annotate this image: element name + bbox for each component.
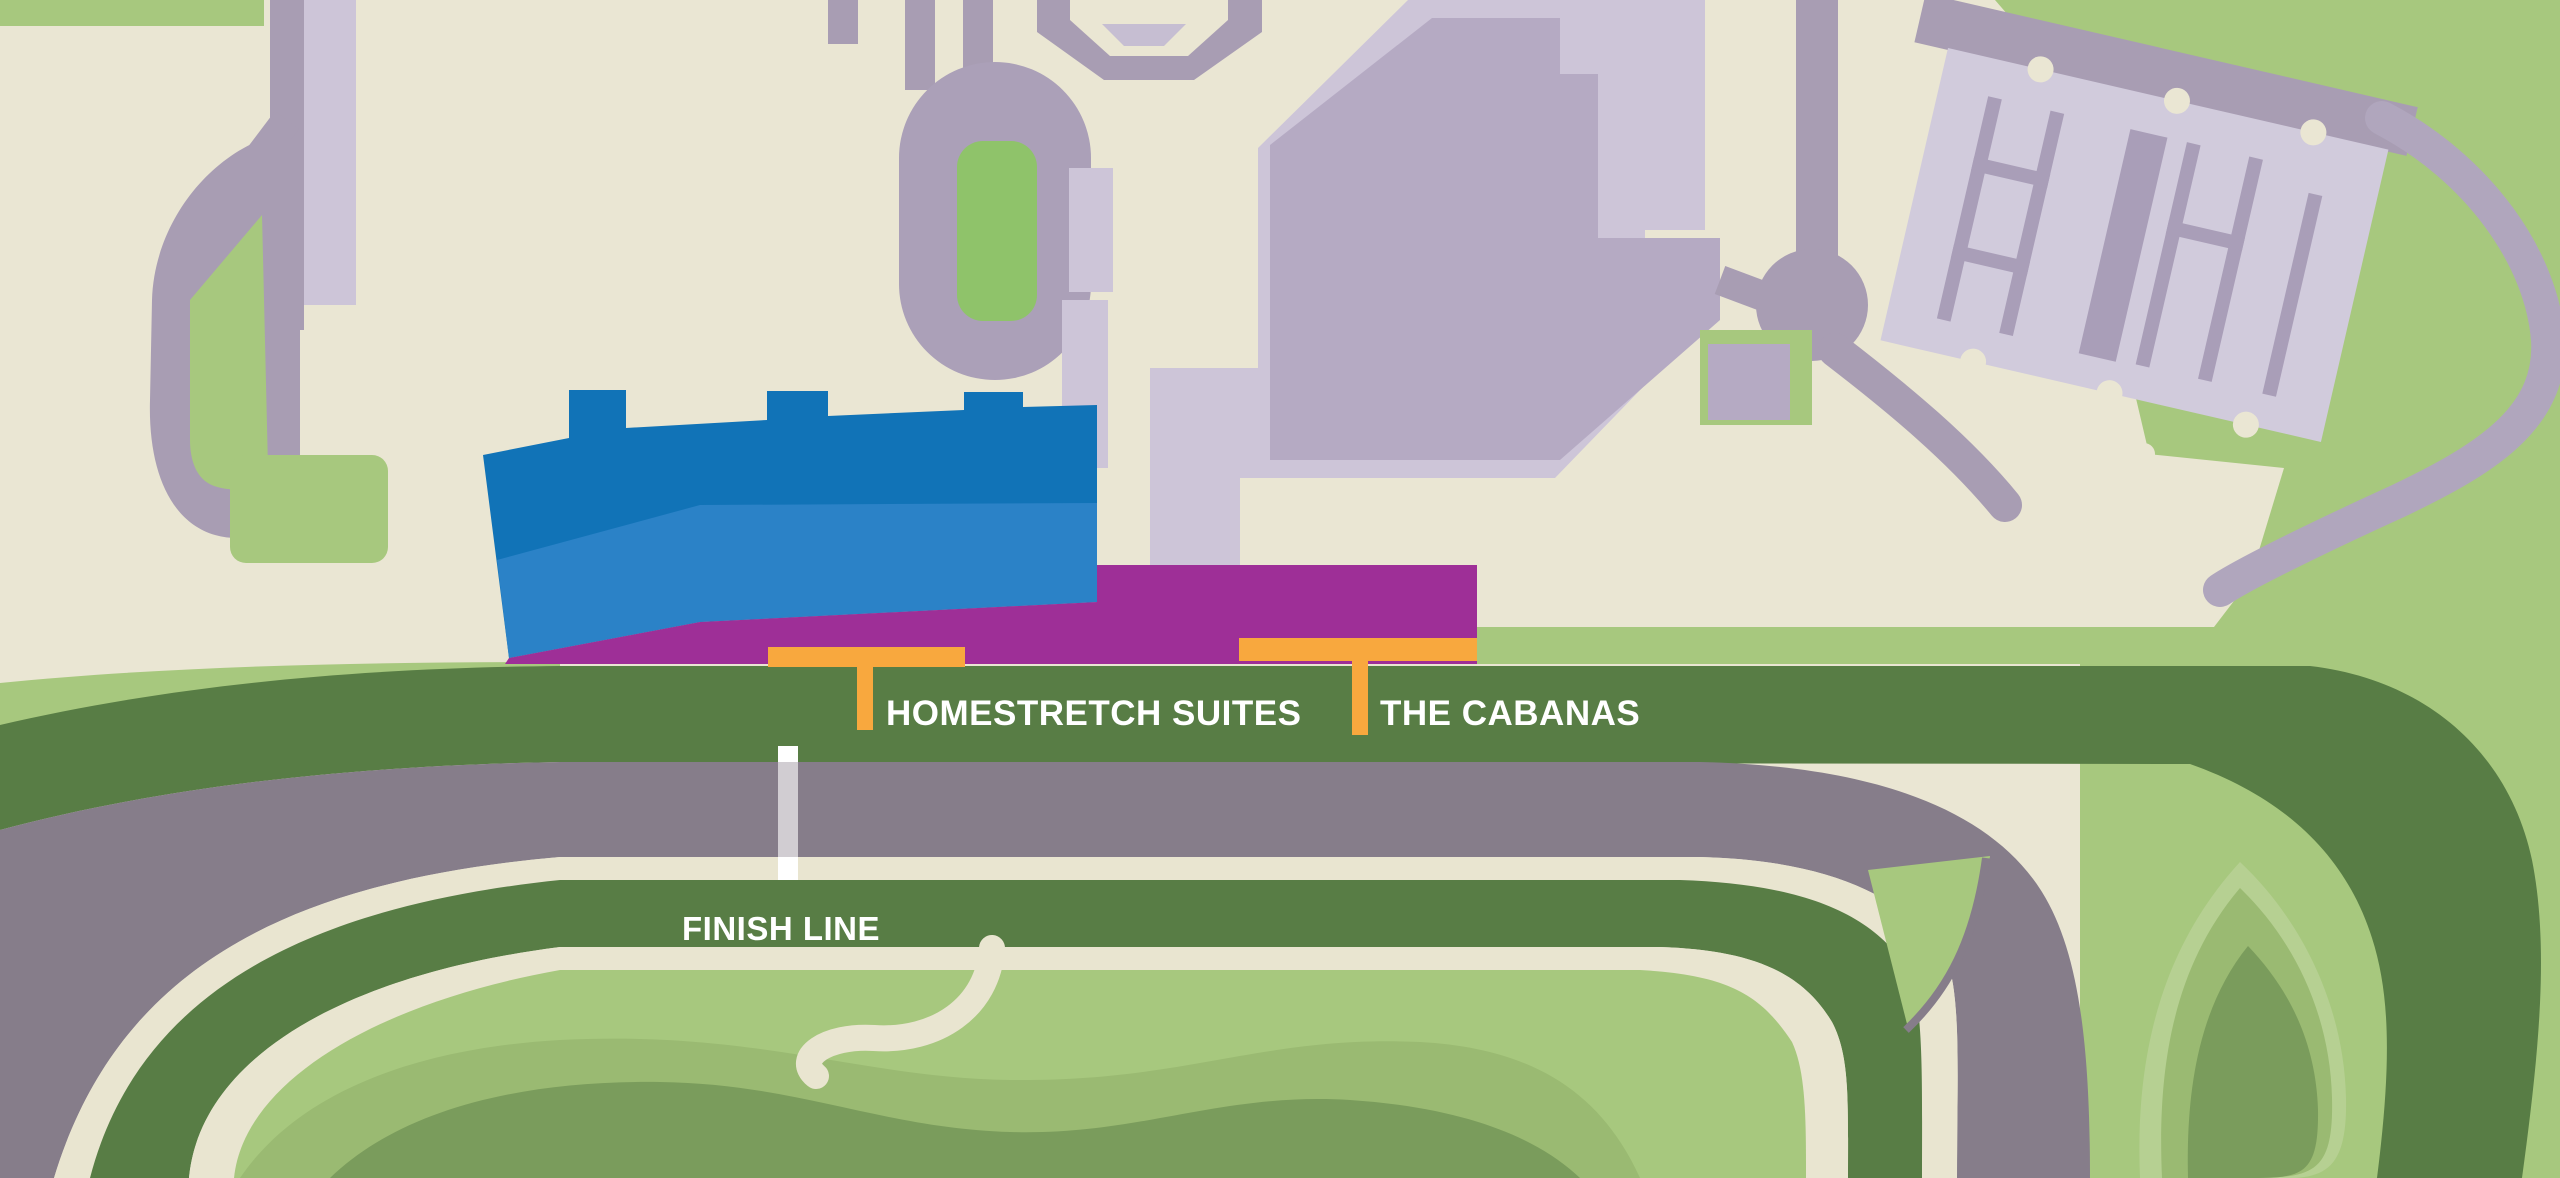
finish-post-track	[778, 762, 798, 857]
building-notch-top	[1560, 0, 1644, 74]
road-light-left	[304, 0, 356, 305]
paddock-green	[957, 141, 1037, 321]
roundabout-inner-square	[1708, 344, 1790, 420]
green-top-strip	[0, 0, 264, 26]
finish-post-bottom	[778, 857, 798, 880]
cabanas-label[interactable]: THE CABANAS	[1380, 694, 1640, 733]
road-vertical-right	[1796, 0, 1838, 262]
paddock-road-stub-1	[905, 0, 935, 90]
cabanas-marker-stem	[1352, 661, 1368, 735]
paddock-walkway	[1069, 168, 1113, 292]
building-notch-side	[1598, 74, 1644, 238]
road-stub-small	[828, 0, 858, 44]
homestretch-marker-bar	[768, 647, 965, 667]
homestretch-suites-label[interactable]: HOMESTRETCH SUITES	[886, 694, 1301, 733]
finish-post-top	[778, 746, 798, 762]
cream-thumb	[2131, 443, 2155, 469]
cabanas-marker-bar	[1239, 638, 1477, 661]
finish-line-label: FINISH LINE	[682, 910, 880, 947]
venue-map: HOMESTRETCH SUITES THE CABANAS FINISH LI…	[0, 0, 2560, 1178]
map-canvas: HOMESTRETCH SUITES THE CABANAS FINISH LI…	[0, 0, 2560, 1178]
green-park-rect	[230, 455, 388, 563]
homestretch-marker-stem	[857, 667, 873, 730]
finish-line-marker[interactable]	[778, 746, 798, 880]
plaza-extension	[1645, 0, 1705, 230]
